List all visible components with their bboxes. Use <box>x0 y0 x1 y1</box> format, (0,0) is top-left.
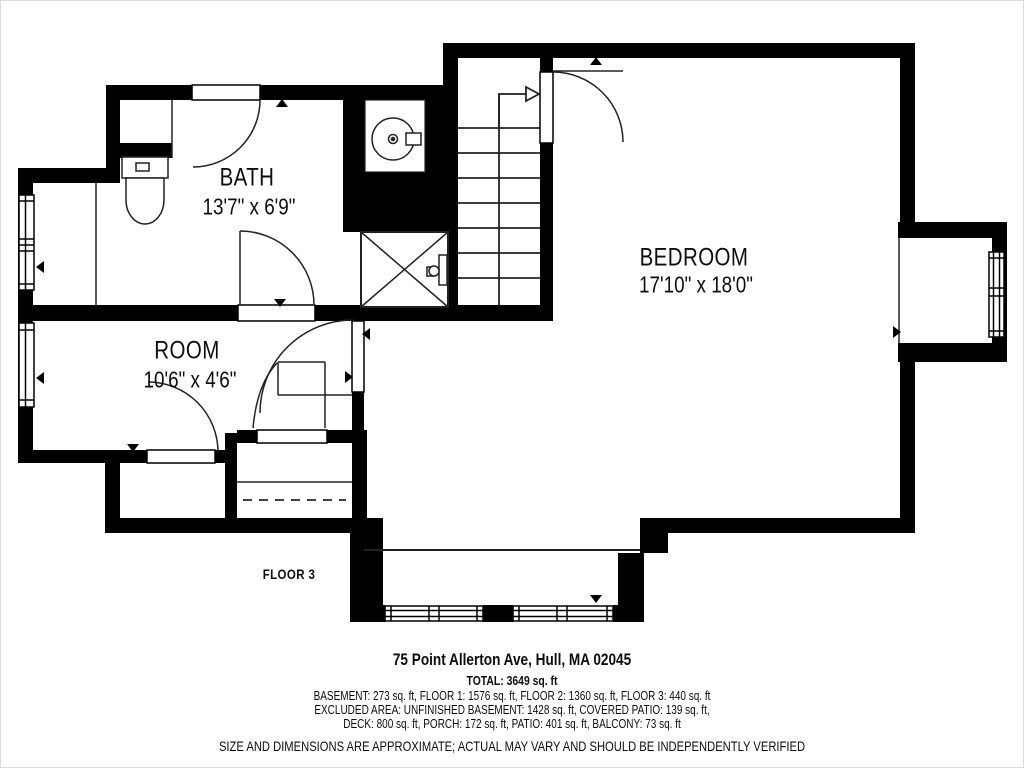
stairs-direction-arrow <box>499 87 539 128</box>
excluded-area-line-2: DECK: 800 sq. ft, PORCH: 172 sq. ft, PAT… <box>102 718 921 732</box>
door-room-entry <box>260 320 364 413</box>
room-dims-bath: 13'7" x 6'9" <box>203 196 296 219</box>
window-balcony-right <box>513 606 613 621</box>
staircase <box>458 87 540 305</box>
marker-window-upper <box>36 261 44 273</box>
room-label-bedroom: BEDROOM <box>640 246 749 271</box>
door-closet-left <box>147 382 218 463</box>
windows-layer <box>19 195 1004 621</box>
room-label-room: ROOM <box>154 339 219 364</box>
disclaimer-line: SIZE AND DIMENSIONS ARE APPROXIMATE; ACT… <box>102 739 921 754</box>
floor-plan-drawing <box>0 0 1024 640</box>
toilet-icon <box>122 157 168 224</box>
partition-lines <box>96 100 899 550</box>
window-left-upper <box>19 195 34 290</box>
excluded-area-line-1: EXCLUDED AREA: UNFINISHED BASEMENT: 1428… <box>102 704 921 718</box>
door-bath-inner <box>238 231 315 321</box>
floor-number-label: FLOOR 3 <box>263 567 316 581</box>
door-bath-entry <box>192 85 260 167</box>
floor-plan-page: BATH 13'7" x 6'9" ROOM 10'6" x 4'6" BEDR… <box>0 0 1024 768</box>
room-label-bath: BATH <box>220 166 275 191</box>
marker-balcony-window <box>590 595 602 603</box>
window-left-lower <box>19 323 34 407</box>
marker-bumpout <box>893 326 901 338</box>
marker-bath-top <box>276 99 288 107</box>
window-balcony-left <box>385 606 483 621</box>
marker-bedroom-top <box>590 57 602 65</box>
area-breakdown-line: BASEMENT: 273 sq. ft, FLOOR 1: 1576 sq. … <box>102 690 921 704</box>
door-bedroom <box>540 71 623 143</box>
window-bumpout-right <box>989 252 1004 337</box>
address-line: 75 Point Allerton Ave, Hull, MA 02045 <box>102 651 921 670</box>
sink-icon <box>365 100 425 172</box>
room-dims-bedroom: 17'10" x 18'0" <box>639 274 753 297</box>
room-dims-room: 10'6" x 4'6" <box>144 369 237 392</box>
total-area-line: TOTAL: 3649 sq. ft <box>102 674 921 688</box>
closet-shelf-lines <box>237 482 352 500</box>
marker-window-lower <box>36 372 44 384</box>
shower-icon <box>361 232 448 307</box>
walls-layer <box>18 43 1007 622</box>
